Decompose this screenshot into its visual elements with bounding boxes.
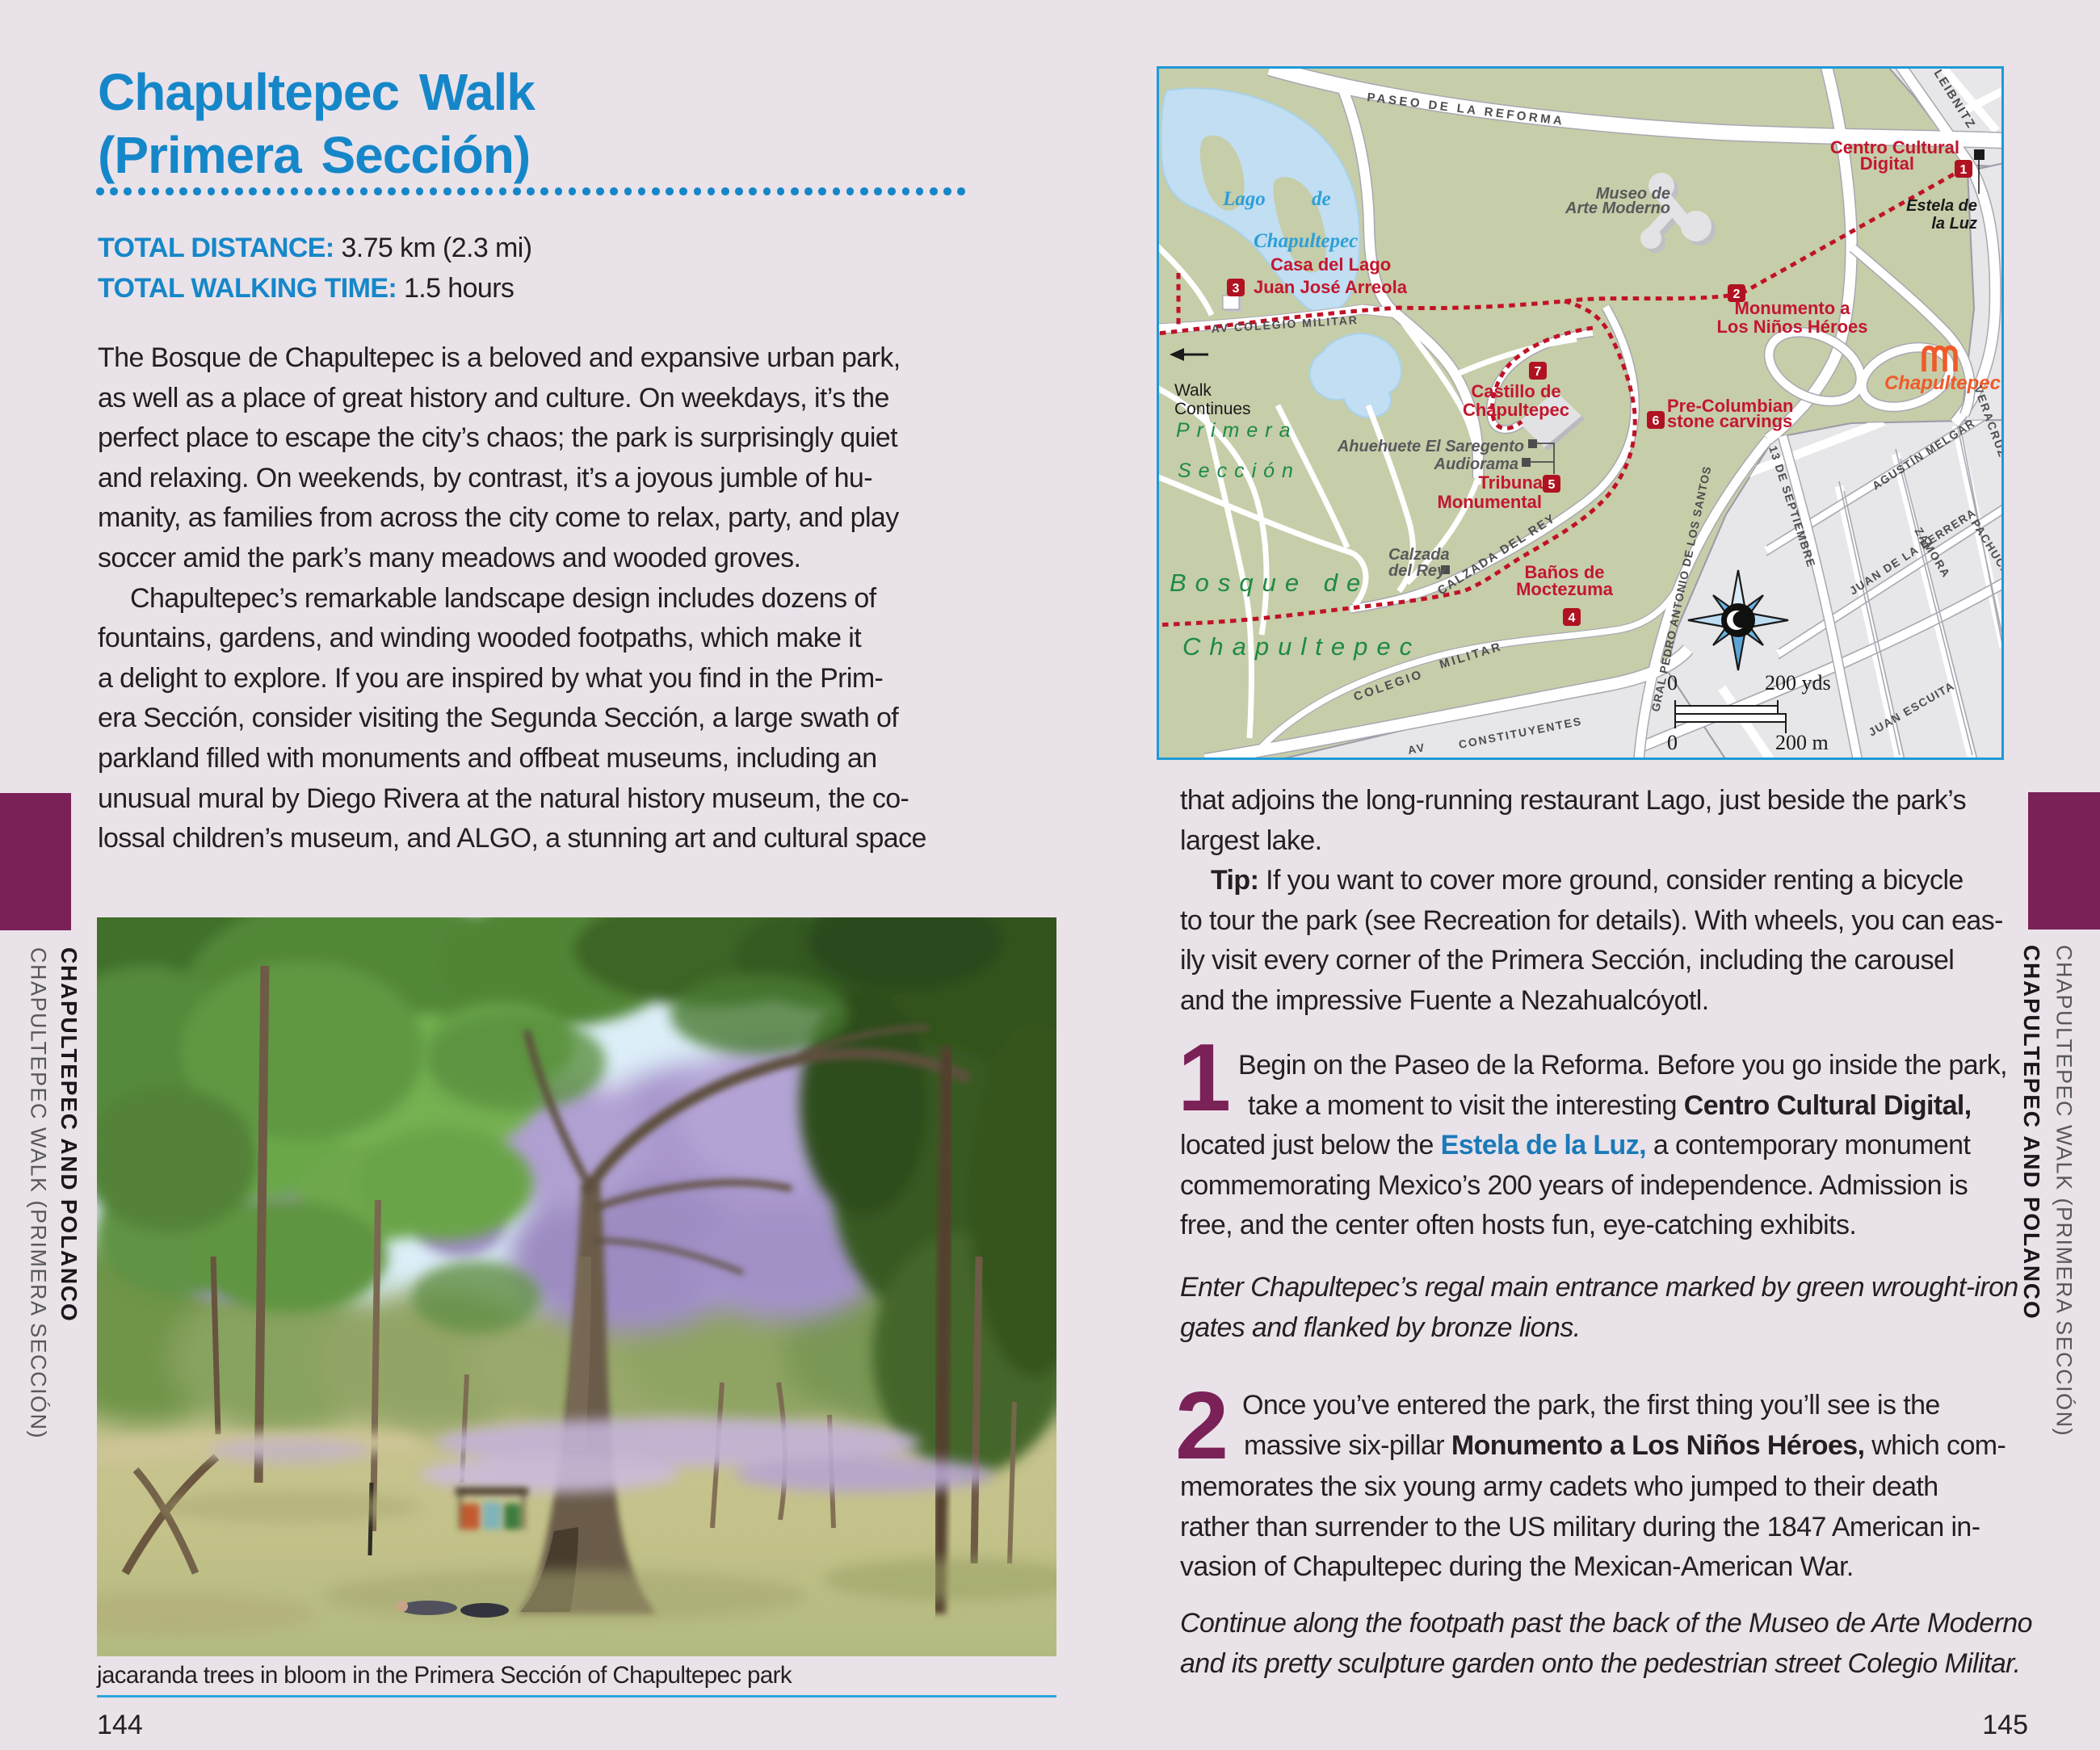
svg-text:Arte Moderno: Arte Moderno <box>1564 199 1670 217</box>
svg-text:Tribuna: Tribuna <box>1479 472 1543 493</box>
svg-text:Los Niños Héroes: Los Niños Héroes <box>1716 317 1867 337</box>
svg-text:0: 0 <box>1667 731 1678 754</box>
svg-text:Primera: Primera <box>1176 419 1298 442</box>
svg-text:Sección: Sección <box>1178 460 1300 482</box>
svg-text:Monumental: Monumental <box>1437 492 1542 512</box>
svg-text:la Luz: la Luz <box>1931 215 1977 233</box>
svg-text:Casa del Lago: Casa del Lago <box>1270 254 1391 275</box>
svg-text:Calzada: Calzada <box>1388 546 1450 564</box>
svg-text:Estela de: Estela de <box>1906 197 1977 215</box>
svg-text:del Rey: del Rey <box>1388 562 1447 580</box>
svg-text:3: 3 <box>1233 282 1240 296</box>
svg-text:Walk: Walk <box>1174 381 1212 400</box>
svg-text:Castillo de: Castillo de <box>1471 381 1560 401</box>
svg-text:Ahuehuete El Saregento: Ahuehuete El Saregento <box>1337 438 1524 455</box>
svg-text:Bosque de: Bosque de <box>1170 569 1369 597</box>
svg-text:4: 4 <box>1569 611 1576 625</box>
svg-text:Moctezuma: Moctezuma <box>1516 579 1614 599</box>
svg-text:Audiorama: Audiorama <box>1434 455 1518 473</box>
svg-text:6: 6 <box>1653 414 1660 428</box>
svg-text:Digital: Digital <box>1860 153 1914 174</box>
svg-text:1: 1 <box>1960 163 1968 177</box>
svg-text:de: de <box>1312 188 1331 210</box>
svg-text:5: 5 <box>1548 478 1556 492</box>
svg-text:Chapultepec: Chapultepec <box>1463 400 1569 420</box>
svg-text:Juan José Arreola: Juan José Arreola <box>1254 277 1408 297</box>
svg-text:200 m: 200 m <box>1775 731 1829 754</box>
svg-text:0: 0 <box>1667 671 1678 695</box>
svg-text:Monumento a: Monumento a <box>1735 298 1851 318</box>
svg-text:7: 7 <box>1535 365 1542 379</box>
svg-text:Chapultepec: Chapultepec <box>1254 230 1358 252</box>
svg-text:Chapultepec: Chapultepec <box>1182 632 1421 661</box>
svg-text:200 yds: 200 yds <box>1765 671 1831 695</box>
svg-text:Lago: Lago <box>1222 188 1266 210</box>
svg-text:Continues: Continues <box>1174 400 1251 418</box>
svg-text:stone carvings: stone carvings <box>1667 411 1792 431</box>
